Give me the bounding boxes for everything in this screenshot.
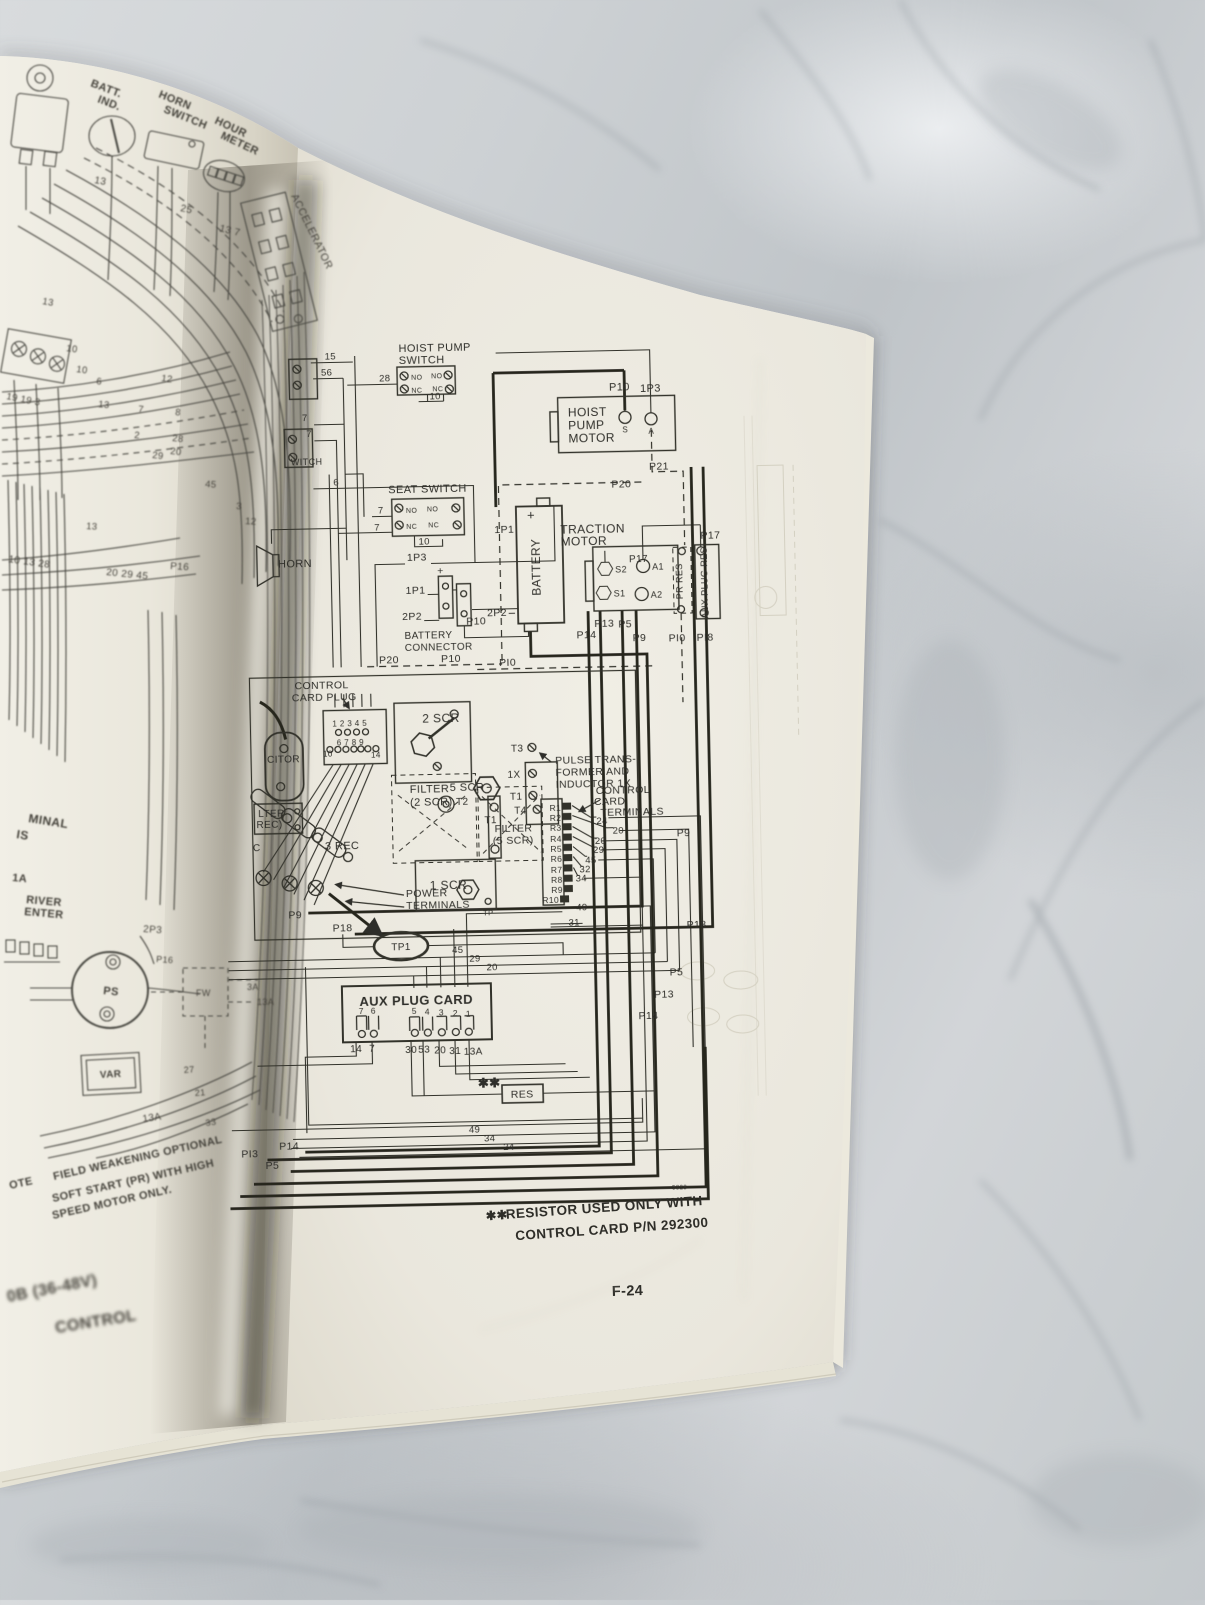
plug-pin-14: 14 xyxy=(371,751,381,760)
aux-pin-2: 2 xyxy=(453,1008,458,1018)
x1-label: 1X xyxy=(507,770,520,781)
r-wire-20a: 20 xyxy=(613,825,625,836)
aux-pin-4: 4 xyxy=(425,1007,430,1017)
traction-s1: S1 xyxy=(614,588,626,598)
tag-p9-right: P9 xyxy=(677,827,691,839)
tag-p18-left: P18 xyxy=(333,922,353,934)
card-terminals-l3: TERMINALS xyxy=(600,806,664,819)
seat-wire-7a: 7 xyxy=(378,505,384,516)
wire-27: 27 xyxy=(183,1064,194,1075)
tag-pi0-prres: PI0 xyxy=(669,632,686,644)
wire-28-label: 28 xyxy=(379,373,391,384)
tp1-label: TP1 xyxy=(391,942,411,953)
wire-24-bottom: 24 xyxy=(503,1142,515,1153)
hps-nc-1: NC xyxy=(411,388,422,395)
scr2-label: 2 SCR xyxy=(422,711,460,726)
seat-no-2: NO xyxy=(427,506,439,513)
filter2-label-1: FILTER xyxy=(410,783,450,796)
r-wire-49: 49 xyxy=(576,902,588,913)
wire-2: 2 xyxy=(134,430,141,442)
r9-label: R9 xyxy=(551,885,563,895)
wire-12b: 12 xyxy=(245,516,257,528)
aux-pin-6: 6 xyxy=(371,1006,376,1016)
wire-13a: 13A xyxy=(257,997,274,1007)
tag-2p2-right: 2P2 xyxy=(487,607,507,619)
filter5-label-2: (5 SCR) xyxy=(493,834,534,847)
r-wire-34: 34 xyxy=(576,873,588,884)
figure-number: 5828 xyxy=(672,1185,687,1191)
motor-s-label: S xyxy=(622,425,628,434)
aux-wire-30: 30 xyxy=(405,1045,417,1056)
tag-p20-upper: P20 xyxy=(611,478,631,490)
hoist-pump-switch-title-1: HOIST PUMP xyxy=(398,342,471,356)
tag-2p3: 2P3 xyxy=(143,924,163,936)
traction-a2: A2 xyxy=(651,590,663,600)
wire-3: 3 xyxy=(236,501,242,512)
tag-p10-connector: P10 xyxy=(466,615,486,627)
aux-wire-7: 7 xyxy=(369,1044,375,1055)
r6-label: R6 xyxy=(550,854,562,864)
wire-13: 13 xyxy=(93,175,107,188)
power-terminals-l1: POWER xyxy=(406,887,448,900)
tag-pi3-bottom: PI3 xyxy=(241,1148,258,1160)
r10-label: R10 xyxy=(542,895,559,905)
wire-13c: 13 xyxy=(98,399,110,411)
r3-label: R3 xyxy=(550,823,562,833)
traction-motor-l2: MOTOR xyxy=(560,534,607,549)
rec3-label: 3 REC xyxy=(325,840,360,853)
r7-label: R7 xyxy=(551,865,563,875)
tag-2p2-left: 2P2 xyxy=(402,611,422,623)
filter-rec-l2: REC) xyxy=(256,820,282,832)
spine-wire-6: 6 xyxy=(333,477,339,488)
wire-29: 29 xyxy=(152,450,164,462)
wire-21: 21 xyxy=(194,1087,205,1098)
book-photo: BATT. IND. HORN SWITCH HOUR METER ACCELE… xyxy=(0,0,1205,1600)
wire-15-label: 15 xyxy=(325,351,337,362)
driver-label-1: 1A xyxy=(12,872,28,885)
capacitor-label: CITOR xyxy=(267,754,300,766)
tag-p9-left: P9 xyxy=(288,909,302,921)
wire-8: 8 xyxy=(175,407,182,419)
control-card-plug-l2: CARD PLUG xyxy=(292,691,357,704)
traction-s2: S2 xyxy=(615,564,627,574)
wire-45: 45 xyxy=(205,479,217,491)
tag-p10-line: P10 xyxy=(441,653,461,665)
spine-wire-7a: 7 xyxy=(302,413,308,424)
wire-12: 12 xyxy=(161,373,174,385)
r5-label: R5 xyxy=(550,844,562,854)
control-card-plug-l1: CONTROL xyxy=(294,679,348,692)
horn-label: HORN xyxy=(278,558,312,571)
aux-pin-7: 7 xyxy=(359,1006,364,1016)
r-wire-31: 31 xyxy=(568,917,580,928)
wire-20: 20 xyxy=(170,446,182,458)
wire-3a: 3A xyxy=(247,982,259,992)
aux-wire-13a: 13A xyxy=(464,1046,483,1057)
tag-1p3: 1P3 xyxy=(407,552,427,564)
battery-label: BATTERY xyxy=(529,539,544,596)
wire-33: 33 xyxy=(205,1117,217,1128)
wire-49-bottom: 49 xyxy=(469,1125,481,1136)
wire-45-mid: 45 xyxy=(452,945,464,956)
tag-p10-motor: P10 xyxy=(609,381,630,393)
var-label: VAR xyxy=(100,1069,122,1081)
t2-label: T2 xyxy=(456,797,469,808)
aux-pin-5: 5 xyxy=(412,1006,417,1016)
wire-7: 7 xyxy=(138,404,145,416)
power-terminals-l2: TERMINALS xyxy=(406,899,470,912)
plug-row-2: 6 7 8 9 xyxy=(337,738,365,748)
wire-34-bottom: 34 xyxy=(484,1133,496,1144)
filter5-label-1: FILTER xyxy=(494,822,532,835)
tag-pi8: PI8 xyxy=(697,632,714,644)
tag-p18-right: P18 xyxy=(687,919,707,931)
spine-wire-7b: 7 xyxy=(306,429,312,440)
res-stars: ✱✱ xyxy=(478,1075,501,1090)
tag-1p1-upper: 1P1 xyxy=(494,524,514,536)
wire-10-label: 10 xyxy=(429,391,441,402)
seat-no-1: NO xyxy=(406,508,418,515)
seat-wire-7b: 7 xyxy=(374,523,380,534)
scr5-label: 5 SCR xyxy=(450,781,485,794)
ps-label: PS xyxy=(103,985,120,999)
plug-row-1: 1 2 3 4 5 xyxy=(332,719,367,729)
fw-label: FW xyxy=(196,988,211,998)
tag-p14-right: P14 xyxy=(638,1010,658,1022)
tag-pi0-line: PI0 xyxy=(499,657,516,669)
wire-56-label: 56 xyxy=(321,367,333,378)
tag-p14-bottom: P14 xyxy=(279,1140,299,1152)
tag-p13-right: P13 xyxy=(654,988,674,1000)
tag-p17-motor: P17 xyxy=(629,554,648,565)
seat-nc-1: NC xyxy=(406,524,417,531)
tag-p5-bottom: P5 xyxy=(265,1160,279,1172)
hoist-pump-switch-title-2: SWITCH xyxy=(399,354,445,367)
motor-a-label: A xyxy=(648,427,654,436)
seat-switch-title: SEAT SWITCH xyxy=(388,483,467,497)
plug-pin-10: 10 xyxy=(323,750,333,759)
wire-10: 10 xyxy=(66,343,79,355)
battery-connector-l1: BATTERY xyxy=(404,630,452,642)
pr-res-label: PR RES xyxy=(674,563,685,599)
r1-label: R1 xyxy=(549,803,561,813)
battery-connector-l2: CONNECTOR xyxy=(405,642,473,654)
hoist-pump-motor-l3: MOTOR xyxy=(568,431,615,446)
wire-28: 28 xyxy=(172,433,184,445)
terminal-label-2: IS xyxy=(16,827,30,843)
tag-p16: P16 xyxy=(170,561,190,573)
hps-no-2: NO xyxy=(431,373,443,380)
wire-29-mid: 29 xyxy=(469,953,481,964)
tp-label: TP xyxy=(483,908,494,917)
r4-label: R4 xyxy=(550,834,562,844)
r2-label: R2 xyxy=(550,813,562,823)
filter-rec-l1: LTER xyxy=(258,809,285,821)
tag-p14-motor: P14 xyxy=(576,629,596,641)
tag-p21: P21 xyxy=(649,460,669,472)
tag-p13-motor: P13 xyxy=(594,618,614,630)
tag-1p3-motor: 1P3 xyxy=(640,383,661,395)
wire-13b: 13 xyxy=(41,296,54,309)
t4-label: T4 xyxy=(514,805,527,816)
aux-wire-53: 53 xyxy=(418,1045,430,1056)
r8-label: R8 xyxy=(551,875,563,885)
t3-label: T3 xyxy=(511,744,524,755)
aux-wire-31: 31 xyxy=(449,1046,461,1057)
wire-10b: 10 xyxy=(76,364,89,376)
spine-switch-label: WITCH xyxy=(291,457,323,468)
wire-20-mid: 20 xyxy=(486,962,498,973)
filter2-label-2: (2 SCR) xyxy=(410,796,453,809)
c-partial-label: C xyxy=(253,843,261,854)
aux-wire-14: 14 xyxy=(350,1044,362,1055)
tag-p9-motor: P9 xyxy=(633,632,647,644)
aux-pin-3: 3 xyxy=(439,1007,444,1017)
tag-p16b: P16 xyxy=(156,954,174,965)
wire-13d: 13 xyxy=(86,521,98,533)
seat-wire-10: 10 xyxy=(418,536,430,547)
traction-a1: A1 xyxy=(652,562,664,572)
seat-nc-2: NC xyxy=(428,522,439,529)
tag-1p1-lower: 1P1 xyxy=(405,585,425,597)
battery-plus: + xyxy=(527,507,535,522)
battery-connector-plus: + xyxy=(437,565,444,577)
tag-p20-line: P20 xyxy=(379,654,399,666)
t1-label: T1 xyxy=(510,792,523,803)
tag-p5-right: P5 xyxy=(670,966,684,978)
tag-p5-motor: P5 xyxy=(618,618,632,630)
aux-pin-1: 1 xyxy=(466,1009,471,1019)
hps-no-1: NO xyxy=(411,375,423,382)
tag-p17-auxres: P17 xyxy=(700,529,720,541)
battery-minus: − xyxy=(508,606,516,621)
aux-wire-20: 20 xyxy=(434,1045,446,1056)
res-label: RES xyxy=(511,1088,534,1100)
r-wire-24: 24 xyxy=(596,816,608,827)
aux-plug-res-label: AUX PLUG RES xyxy=(699,547,710,619)
